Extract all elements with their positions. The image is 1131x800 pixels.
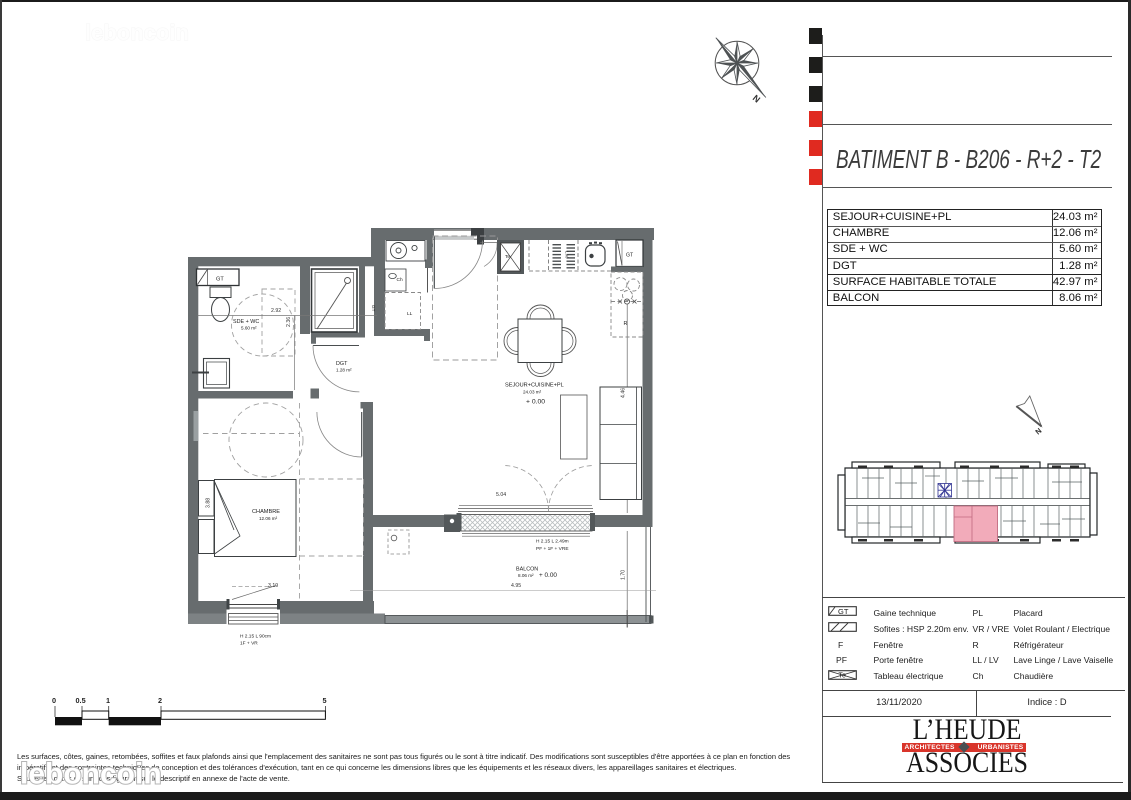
svg-text:R: R [624, 321, 628, 327]
svg-text:1F + VR: 1F + VR [240, 641, 258, 647]
svg-text:4.95: 4.95 [511, 583, 521, 589]
svg-text:3.19: 3.19 [268, 583, 278, 589]
svg-text:Te: Te [505, 254, 510, 260]
svg-text:4.46: 4.46 [621, 388, 627, 398]
svg-text:DGT: DGT [336, 361, 348, 367]
svg-text:8.06 m²: 8.06 m² [518, 573, 534, 578]
svg-text:24.03 m²: 24.03 m² [523, 390, 542, 395]
svg-text:N: N [751, 93, 762, 105]
svg-text:5.60 m²: 5.60 m² [241, 326, 257, 331]
svg-text:+ 0.00: + 0.00 [526, 399, 545, 406]
svg-text:5.04: 5.04 [496, 492, 506, 498]
svg-text:BALCON: BALCON [516, 567, 538, 573]
svg-text:N: N [1034, 426, 1044, 436]
svg-text:LL: LL [407, 311, 413, 317]
svg-text:L.V.: L.V. [565, 251, 570, 258]
svg-text:+ 0.00: + 0.00 [539, 572, 557, 579]
svg-text:1.70: 1.70 [621, 570, 627, 580]
svg-text:2.92: 2.92 [271, 308, 281, 314]
svg-text:H 2.15 L 2.49m: H 2.15 L 2.49m [536, 539, 569, 545]
svg-text:2.36: 2.36 [286, 317, 292, 327]
svg-text:12.06 m²: 12.06 m² [259, 516, 278, 521]
svg-text:GT: GT [626, 253, 634, 259]
svg-text:1.28 m²: 1.28 m² [336, 368, 352, 373]
svg-text:3.88: 3.88 [206, 498, 212, 508]
svg-text:SEJOUR+CUISINE+PL: SEJOUR+CUISINE+PL [505, 383, 564, 389]
svg-text:SDE + WC: SDE + WC [233, 319, 259, 325]
svg-text:CHAMBRE: CHAMBRE [252, 509, 280, 515]
svg-text:GT: GT [216, 277, 224, 283]
svg-text:H 2.15 L 90cm: H 2.15 L 90cm [240, 634, 271, 640]
svg-text:PF + 1F + VRE: PF + 1F + VRE [536, 546, 569, 552]
svg-text:Ch: Ch [397, 277, 403, 283]
svg-text:GT: GT [371, 305, 376, 312]
